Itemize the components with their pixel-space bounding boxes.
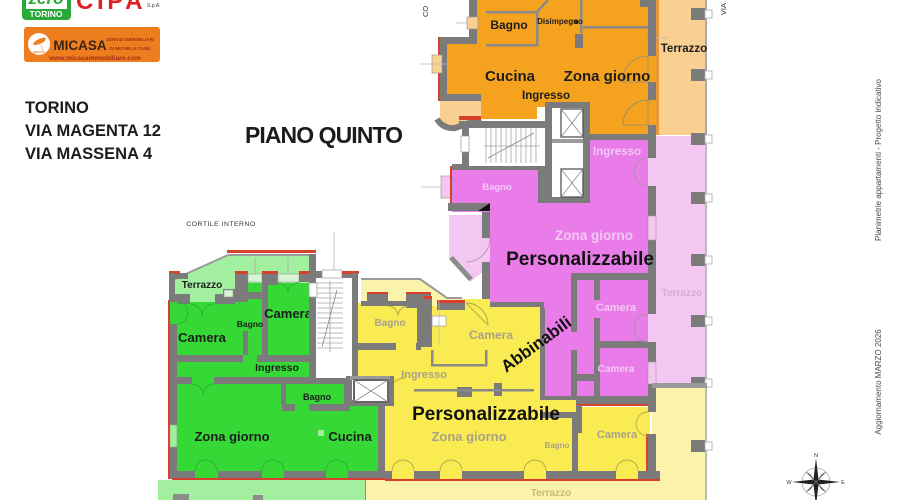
svg-text:Terrazzo: Terrazzo	[662, 288, 702, 299]
svg-text:Zona giorno: Zona giorno	[564, 68, 651, 85]
svg-text:VIA: VIA	[719, 3, 728, 15]
svg-text:SERVIZI IMMOBILIARI: SERVIZI IMMOBILIARI	[106, 37, 154, 42]
svg-text:Camera: Camera	[469, 328, 513, 342]
svg-text:TORINO: TORINO	[30, 9, 63, 19]
svg-text:MICASA: MICASA	[53, 38, 106, 53]
svg-text:Terrazzo: Terrazzo	[182, 280, 222, 291]
svg-text:Bagno: Bagno	[482, 182, 512, 193]
svg-text:Planimetrie appartamenti - Pro: Planimetrie appartamenti - Progetto indi…	[874, 79, 883, 241]
svg-text:Terrazzo: Terrazzo	[661, 43, 707, 55]
svg-text:W: W	[786, 480, 792, 486]
svg-text:Camera: Camera	[178, 330, 226, 345]
svg-text:Personalizzabile: Personalizzabile	[412, 404, 560, 425]
svg-text:Bagno: Bagno	[545, 441, 570, 450]
svg-text:CO: CO	[421, 6, 430, 17]
svg-text:Camera: Camera	[264, 306, 312, 321]
svg-text:Ingresso: Ingresso	[255, 362, 299, 374]
svg-text:Terrazzo: Terrazzo	[531, 488, 571, 499]
svg-text:VIA MAGENTA 12: VIA MAGENTA 12	[25, 122, 161, 140]
svg-text:Cucina: Cucina	[485, 68, 536, 85]
svg-text:Zona giorno: Zona giorno	[194, 429, 269, 444]
svg-text:DI MICHELA CANE: DI MICHELA CANE	[110, 46, 151, 51]
svg-text:Ingresso: Ingresso	[401, 369, 447, 381]
svg-text:Ingresso: Ingresso	[593, 146, 641, 158]
svg-text:CORTILE INTERNO: CORTILE INTERNO	[186, 221, 255, 228]
svg-text:VIA MASSENA 4: VIA MASSENA 4	[25, 145, 153, 163]
svg-text:Cucina: Cucina	[328, 429, 372, 444]
svg-text:zero: zero	[28, 0, 64, 8]
svg-text:Ingresso: Ingresso	[522, 90, 570, 102]
svg-text:www.micasaimmobiliare.com: www.micasaimmobiliare.com	[48, 55, 141, 62]
svg-text:Bagno: Bagno	[374, 318, 405, 329]
svg-text:Personalizzabile: Personalizzabile	[506, 249, 654, 270]
svg-text:Camera: Camera	[597, 429, 638, 441]
svg-text:S.p.A.: S.p.A.	[147, 3, 161, 9]
svg-text:CIPA: CIPA	[76, 0, 143, 15]
svg-text:N: N	[814, 453, 818, 459]
svg-text:Disimpegno: Disimpegno	[537, 17, 583, 26]
svg-text:E: E	[841, 480, 845, 486]
svg-text:Camera: Camera	[598, 364, 635, 375]
svg-text:MICASA: MICASA	[33, 50, 46, 54]
svg-text:Aggiornamento MARZO 2026: Aggiornamento MARZO 2026	[874, 329, 883, 435]
svg-text:Bagno: Bagno	[303, 392, 332, 402]
svg-text:PIANO QUINTO: PIANO QUINTO	[245, 122, 403, 148]
svg-text:Bagno: Bagno	[237, 319, 263, 329]
svg-text:Bagno: Bagno	[490, 18, 527, 32]
svg-text:TORINO: TORINO	[25, 99, 89, 117]
svg-text:Camera: Camera	[596, 302, 637, 314]
svg-text:Zona giorno: Zona giorno	[555, 228, 633, 243]
svg-text:Zona giorno: Zona giorno	[431, 429, 506, 444]
